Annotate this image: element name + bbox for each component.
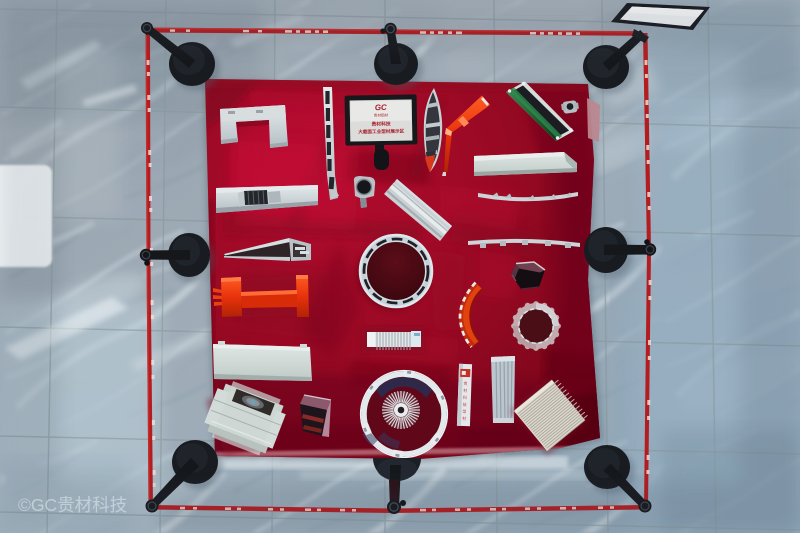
svg-text:贵: 贵 bbox=[463, 380, 467, 386]
svg-text:©GC贵材科技: ©GC贵材科技 bbox=[18, 495, 127, 515]
svg-text:材: 材 bbox=[463, 387, 467, 393]
svg-text:贵材铝材: 贵材铝材 bbox=[374, 112, 389, 117]
svg-text:材: 材 bbox=[462, 415, 466, 421]
svg-text:技: 技 bbox=[463, 401, 467, 407]
svg-text:科: 科 bbox=[463, 394, 467, 400]
svg-text:型: 型 bbox=[462, 408, 466, 414]
svg-text:GC: GC bbox=[375, 103, 387, 112]
